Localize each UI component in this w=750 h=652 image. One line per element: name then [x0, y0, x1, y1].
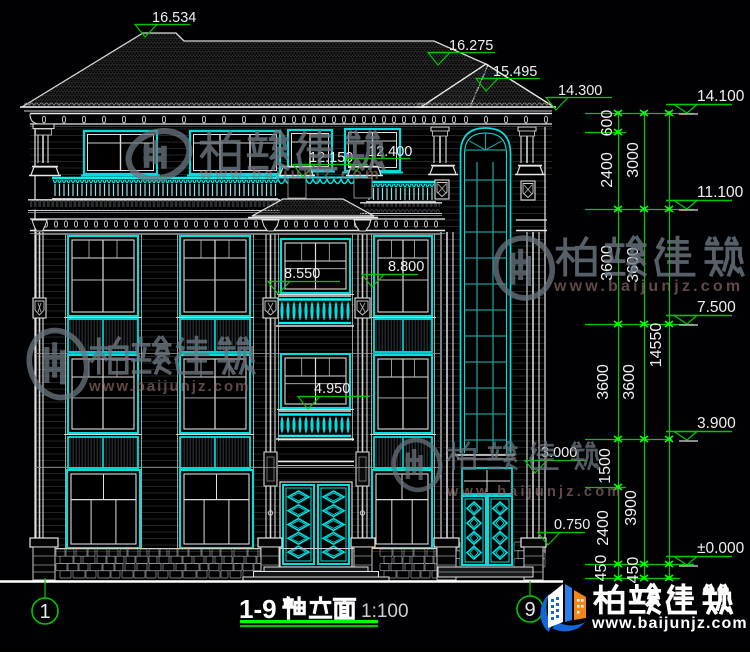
svg-text:11.100: 11.100 [697, 184, 744, 201]
svg-text:2400: 2400 [599, 152, 616, 188]
svg-text:8.550: 8.550 [284, 266, 320, 282]
svg-text:600: 600 [599, 110, 616, 137]
svg-text:7.500: 7.500 [697, 299, 736, 316]
svg-text:www.baijunjz.com: www.baijunjz.com [199, 166, 382, 183]
svg-text:3600: 3600 [621, 364, 638, 400]
svg-text:www.baijunjz.com: www.baijunjz.com [591, 615, 748, 632]
svg-text:450: 450 [625, 557, 642, 584]
svg-text:www.baijunjz.com: www.baijunjz.com [88, 378, 250, 395]
svg-text:3900: 3900 [623, 490, 640, 526]
svg-text:450: 450 [593, 555, 610, 582]
svg-text:3.900: 3.900 [697, 415, 736, 432]
svg-text:1: 1 [39, 601, 50, 623]
svg-text:8.800: 8.800 [388, 259, 424, 275]
svg-text:1500: 1500 [597, 448, 614, 484]
svg-text:3000: 3000 [625, 142, 642, 178]
svg-text:16.534: 16.534 [152, 10, 196, 26]
svg-text:9: 9 [524, 599, 535, 621]
svg-text:2400: 2400 [595, 510, 612, 546]
svg-text:4.950: 4.950 [314, 381, 350, 397]
svg-text:15.495: 15.495 [493, 64, 537, 80]
svg-text:1-9: 1-9 [239, 594, 277, 624]
svg-text:3600: 3600 [595, 364, 612, 400]
svg-text:0.750: 0.750 [554, 517, 590, 533]
svg-text:www.baijunjz.com: www.baijunjz.com [553, 278, 743, 295]
svg-text:1:100: 1:100 [361, 601, 409, 622]
svg-text:www.baijunjz.com: www.baijunjz.com [446, 484, 623, 500]
svg-text:±0.000: ±0.000 [697, 540, 745, 557]
svg-text:14.100: 14.100 [697, 88, 745, 105]
svg-text:16.275: 16.275 [449, 38, 493, 54]
svg-text:14.300: 14.300 [558, 83, 602, 99]
svg-text:14550: 14550 [648, 323, 665, 368]
